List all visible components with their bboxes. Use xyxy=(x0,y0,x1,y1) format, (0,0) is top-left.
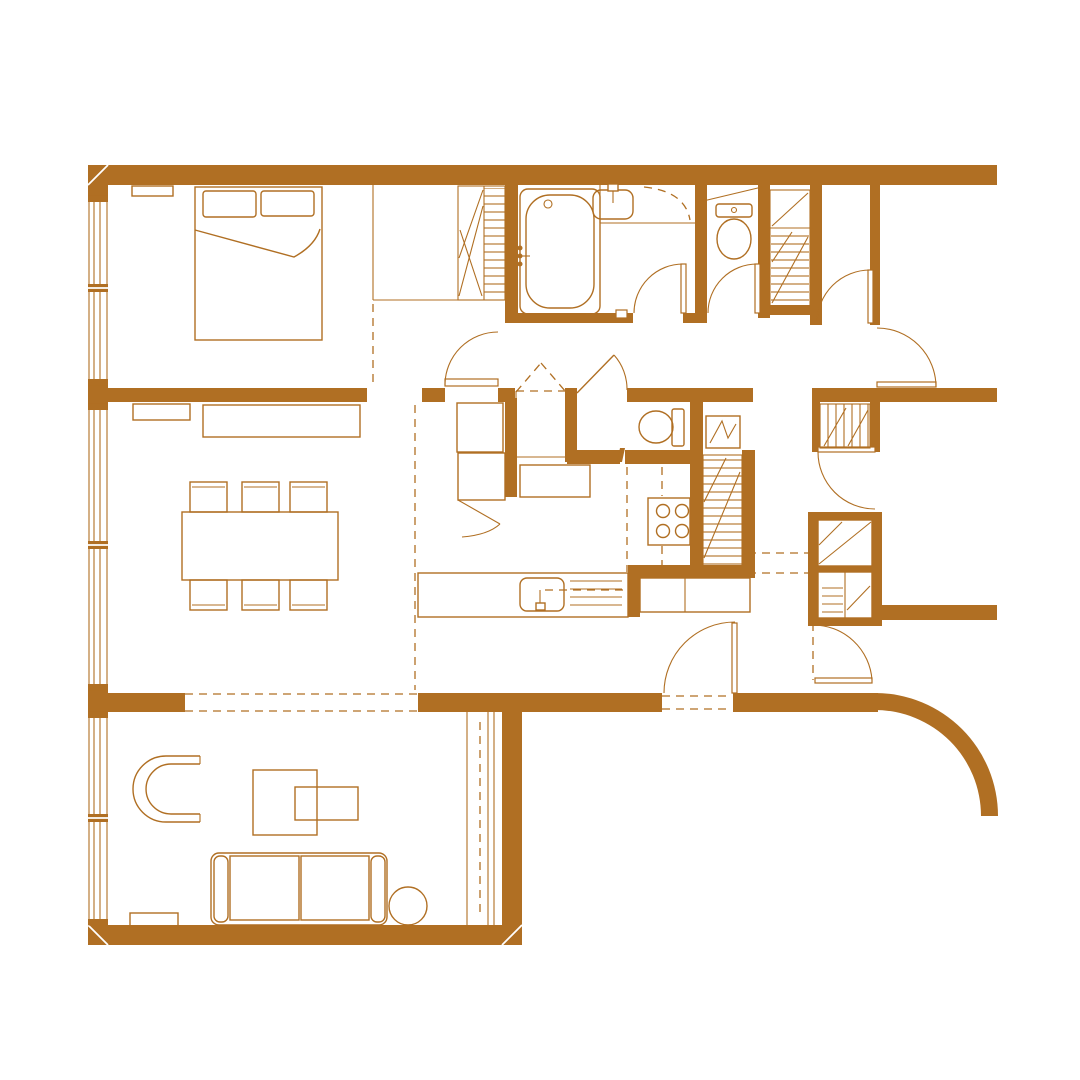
floor-plan-drawing: Apartment floor plan drawing xyxy=(0,0,1080,1080)
door-swing-arc xyxy=(445,332,498,385)
pantry-cabinet xyxy=(516,391,566,457)
burner xyxy=(676,525,689,538)
pillow-right xyxy=(261,191,314,216)
window-bedroom xyxy=(88,196,108,385)
wall-bath-left xyxy=(505,185,518,323)
water-heater xyxy=(706,416,740,448)
walls xyxy=(88,165,998,945)
bathtub-outer xyxy=(520,189,600,314)
wardrobe-hatched xyxy=(458,186,505,300)
sloped-niche xyxy=(699,187,762,202)
door-vestibule xyxy=(817,270,873,323)
burner xyxy=(657,525,670,538)
closet-lower xyxy=(818,572,872,618)
coffee-table-large xyxy=(253,770,317,835)
dining-chairs-top xyxy=(190,482,327,512)
armchair xyxy=(133,756,200,822)
pillow-left xyxy=(203,191,256,217)
wall-powder-bottom-b xyxy=(625,450,691,464)
service-shaft xyxy=(770,190,810,308)
wall-partition-left xyxy=(88,693,185,712)
duvet-fold xyxy=(195,229,320,257)
wall-corridor-bottom-a xyxy=(418,693,662,712)
wall-kitchen-pier xyxy=(505,398,517,497)
room-dining xyxy=(133,404,360,610)
wall-corridor-bottom-b xyxy=(733,693,878,712)
toilet-tank xyxy=(672,409,684,446)
wall-top xyxy=(88,165,997,185)
bath-faucet xyxy=(518,246,531,267)
sofa-seat-right xyxy=(301,856,369,920)
door-hall-closet xyxy=(818,447,875,509)
curved-wall xyxy=(875,693,998,816)
bathtub-inner xyxy=(526,195,594,308)
flush-button xyxy=(732,208,737,213)
wall-closet1-left xyxy=(812,402,820,452)
door-bath-corridor xyxy=(445,332,498,386)
room-powder xyxy=(639,409,740,448)
wall-powder-bottom-a xyxy=(567,450,620,464)
wall-bottom-lounge xyxy=(88,925,522,945)
drainboard-lines xyxy=(570,581,622,605)
wall-shaft-bottom xyxy=(758,305,822,315)
dash-fold-right xyxy=(541,363,566,392)
toilet-bowl xyxy=(639,411,673,443)
wall-kitchen-right xyxy=(690,402,703,578)
coffee-table-small xyxy=(295,787,358,820)
sofa-arm-right xyxy=(371,856,385,922)
sofa xyxy=(211,853,387,925)
hallway-closets xyxy=(818,404,872,618)
sideboard xyxy=(203,405,360,437)
low-bench xyxy=(130,913,178,927)
dining-table xyxy=(182,512,338,580)
dash-fold-left xyxy=(516,363,541,392)
base-cabinet xyxy=(520,465,590,497)
basin-faucet xyxy=(608,184,618,191)
door-wc xyxy=(708,264,760,313)
burner xyxy=(657,505,670,518)
wall-left-seg1 xyxy=(88,165,108,196)
wall-mid-a xyxy=(88,388,367,402)
wall-wc-left xyxy=(695,185,707,323)
diagonal-void xyxy=(772,193,808,226)
double-bed xyxy=(195,187,322,340)
dining-chairs-bottom xyxy=(190,580,327,610)
floor-plan-canvas: Apartment floor plan drawing xyxy=(0,0,1080,1080)
sofa-seat-left xyxy=(230,856,299,920)
wall-right-stub xyxy=(880,605,997,620)
wall-lounge-right xyxy=(502,712,522,945)
tall-cabinet-1 xyxy=(457,403,503,452)
room-bathroom xyxy=(518,184,696,318)
tall-cabinet-2 xyxy=(458,453,505,500)
window-dining xyxy=(88,404,108,690)
toilet-tank xyxy=(716,204,752,217)
wall-shelf xyxy=(132,186,173,196)
sofa-arm-left xyxy=(214,856,228,922)
wall-closet1-right xyxy=(870,402,880,452)
wall-closets-mid xyxy=(814,566,872,572)
door-entrance xyxy=(877,328,936,387)
round-side-table xyxy=(389,887,427,925)
door-bathroom xyxy=(634,264,686,313)
counter-run xyxy=(640,578,750,612)
closet-upper xyxy=(818,520,872,566)
wall-fridge-right xyxy=(742,450,755,578)
wall-island-stub xyxy=(628,565,640,617)
room-wc xyxy=(699,187,762,259)
refrigerator-hatched xyxy=(703,455,742,567)
door-threshold xyxy=(445,379,498,386)
room-lounge xyxy=(130,712,494,927)
toilet-bowl xyxy=(717,219,751,259)
windows xyxy=(88,196,108,925)
door-hall-lower xyxy=(813,623,872,683)
cooktop xyxy=(648,498,690,545)
bathtub-drain xyxy=(544,200,552,208)
wall-mid-b xyxy=(422,388,445,402)
window-lounge xyxy=(88,712,108,925)
wall-closets-top xyxy=(808,512,882,520)
wall-mid-c xyxy=(627,388,753,402)
closet-hatched xyxy=(820,404,870,448)
wall-shelf xyxy=(133,404,190,420)
vanity-counter xyxy=(593,184,695,223)
dash-bath-corner-shelf xyxy=(644,187,690,220)
burner xyxy=(676,505,689,518)
island-counter xyxy=(418,573,628,617)
door-cabinet xyxy=(458,500,500,537)
room-bedroom xyxy=(132,185,505,340)
wall-mid-right xyxy=(812,388,997,402)
door-corridor xyxy=(662,622,737,709)
door-powder-room xyxy=(577,355,627,393)
